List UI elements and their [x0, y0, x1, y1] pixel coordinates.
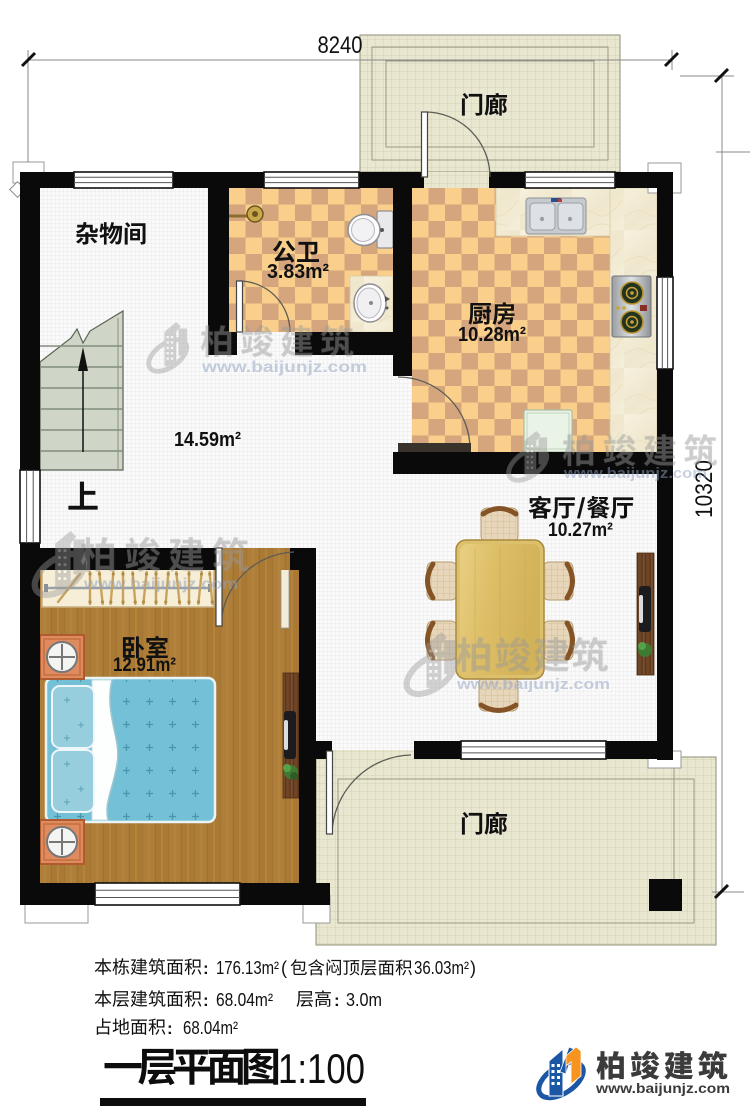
svg-text:www.baijunjz.com: www.baijunjz.com — [83, 576, 238, 593]
svg-text::: : — [334, 991, 340, 1010]
svg-text:68.04m²: 68.04m² — [216, 990, 273, 1010]
svg-text:8240: 8240 — [318, 32, 363, 59]
svg-text:www.baijunjz.com: www.baijunjz.com — [456, 676, 610, 693]
svg-text:3.83m²: 3.83m² — [267, 261, 329, 283]
svg-text::: : — [203, 991, 209, 1010]
svg-text:www.baijunjz.com: www.baijunjz.com — [595, 1080, 730, 1096]
svg-text:10.27m²: 10.27m² — [548, 520, 613, 541]
svg-text:3.0m: 3.0m — [346, 990, 382, 1010]
svg-text::: : — [203, 959, 209, 978]
svg-text:www.baijunjz.com: www.baijunjz.com — [201, 359, 367, 376]
svg-text:www.baijunjz.com: www.baijunjz.com — [563, 465, 707, 482]
svg-text:10.28m²: 10.28m² — [458, 324, 526, 346]
svg-text:68.04m²: 68.04m² — [183, 1018, 238, 1038]
svg-text:36.03m²: 36.03m² — [414, 958, 469, 978]
svg-text:12.91m²: 12.91m² — [113, 655, 176, 676]
svg-text:(: ( — [281, 958, 287, 978]
svg-text:14.59m²: 14.59m² — [174, 429, 241, 451]
svg-text::: : — [167, 1019, 173, 1038]
svg-text:): ) — [470, 958, 476, 978]
svg-text:176.13m²: 176.13m² — [216, 958, 279, 978]
svg-text:1:100: 1:100 — [278, 1045, 365, 1092]
